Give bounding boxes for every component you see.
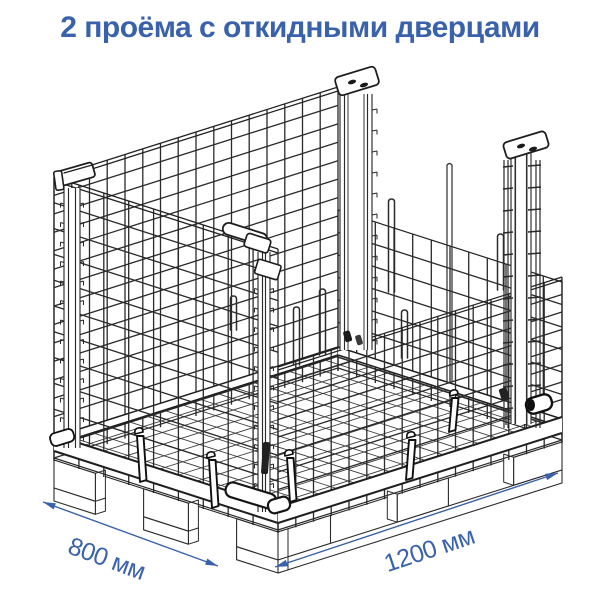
svg-text:800 мм: 800 мм xyxy=(64,532,149,586)
